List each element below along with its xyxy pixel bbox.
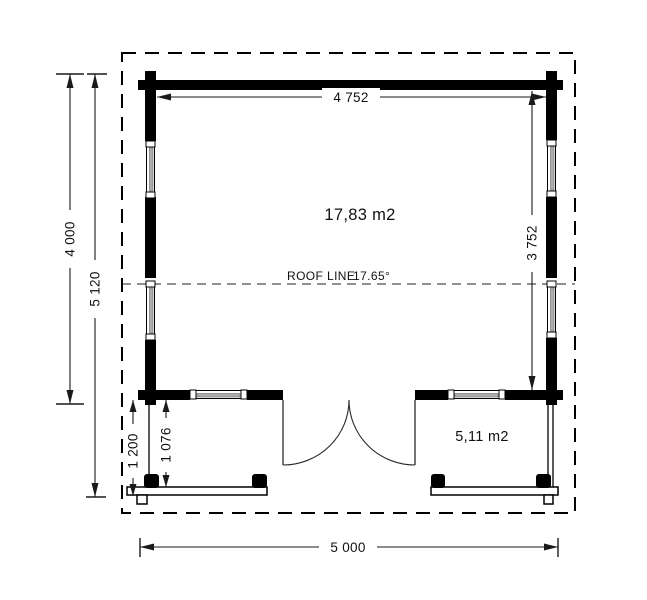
window-right-upper xyxy=(547,140,556,197)
terrace-foot-left xyxy=(137,495,147,504)
wall-right-upper xyxy=(546,71,557,140)
window-left-upper xyxy=(146,141,155,198)
terrace-post-1 xyxy=(144,474,159,488)
roof-angle-text: 17.65° xyxy=(353,269,390,283)
wall-right-middle xyxy=(546,197,557,278)
wall-left-upper xyxy=(145,71,156,141)
terrace-floor-left xyxy=(127,487,267,495)
main-room-area-label: 17,83 m2 xyxy=(324,206,395,224)
roof-line-label: ROOF LINE 17.65° xyxy=(283,269,393,283)
wall-bottom-right-b xyxy=(505,390,563,400)
terrace-floor-right xyxy=(431,487,558,495)
window-bottom-left xyxy=(190,390,247,399)
dim-building-depth-label: 4 000 xyxy=(63,221,78,256)
terrace-post-4 xyxy=(536,474,551,488)
porch-area-label: 5,11 m2 xyxy=(455,429,508,445)
window-bottom-right xyxy=(448,390,505,399)
wall-left-middle xyxy=(145,197,156,278)
terrace-post-3 xyxy=(431,474,445,488)
roof-line-text: ROOF LINE xyxy=(287,269,355,283)
floor-plan-canvas: 4 752 3 752 4 000 5 120 1 200 xyxy=(0,0,647,600)
dim-interior-width-label: 4 752 xyxy=(333,90,368,105)
dim-porch-depth-inner-label: 1 076 xyxy=(159,427,174,462)
window-right-lower xyxy=(547,281,556,338)
wall-bottom-left-b xyxy=(247,390,283,400)
terrace-post-2 xyxy=(252,474,267,488)
wall-bottom-right-a xyxy=(415,390,448,400)
floor-plan: 4 752 3 752 4 000 5 120 1 200 xyxy=(0,0,647,600)
dim-overall-width-label: 5 000 xyxy=(330,540,365,555)
window-left-lower xyxy=(146,281,155,340)
wall-bottom-left-a xyxy=(138,390,190,400)
terrace-foot-right xyxy=(544,495,553,504)
dim-overall-depth-label: 5 120 xyxy=(88,271,103,306)
dim-porch-depth-outer-label: 1 200 xyxy=(126,433,141,468)
dim-interior-depth-label: 3 752 xyxy=(525,225,540,260)
